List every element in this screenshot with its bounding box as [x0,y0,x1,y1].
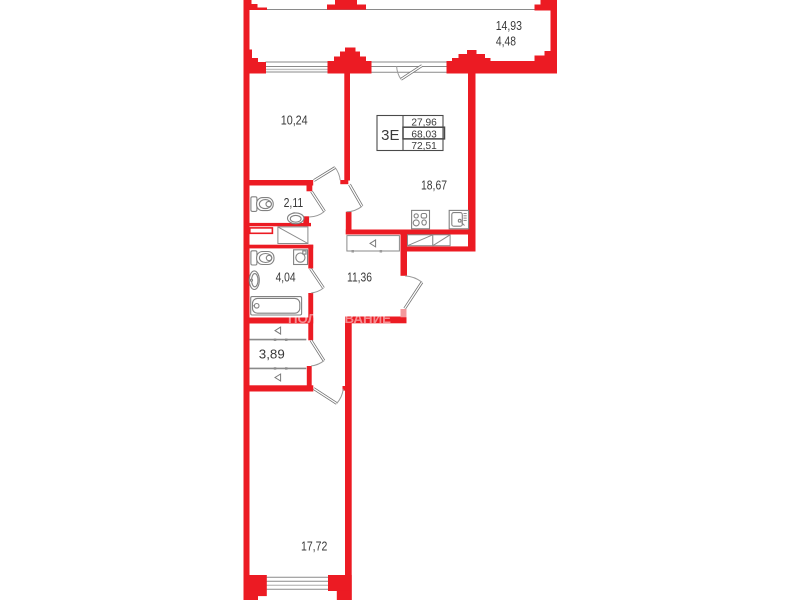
svg-text:10,24: 10,24 [281,112,308,127]
svg-text:2,11: 2,11 [284,195,304,210]
svg-text:14,93: 14,93 [496,18,522,33]
svg-text:3Е: 3Е [381,128,399,144]
svg-text:17,72: 17,72 [301,539,327,554]
svg-text:3,89: 3,89 [259,347,285,362]
svg-text:ПОЛЬЗОВАНИЕ: ПОЛЬЗОВАНИЕ [288,312,391,326]
svg-text:18,67: 18,67 [421,177,447,192]
svg-text:4,48: 4,48 [496,33,516,48]
svg-text:27,96: 27,96 [411,118,437,129]
svg-text:72,51: 72,51 [411,141,437,152]
svg-text:11,36: 11,36 [347,269,372,284]
svg-text:68,03: 68,03 [411,129,437,140]
svg-text:4,04: 4,04 [276,269,296,284]
